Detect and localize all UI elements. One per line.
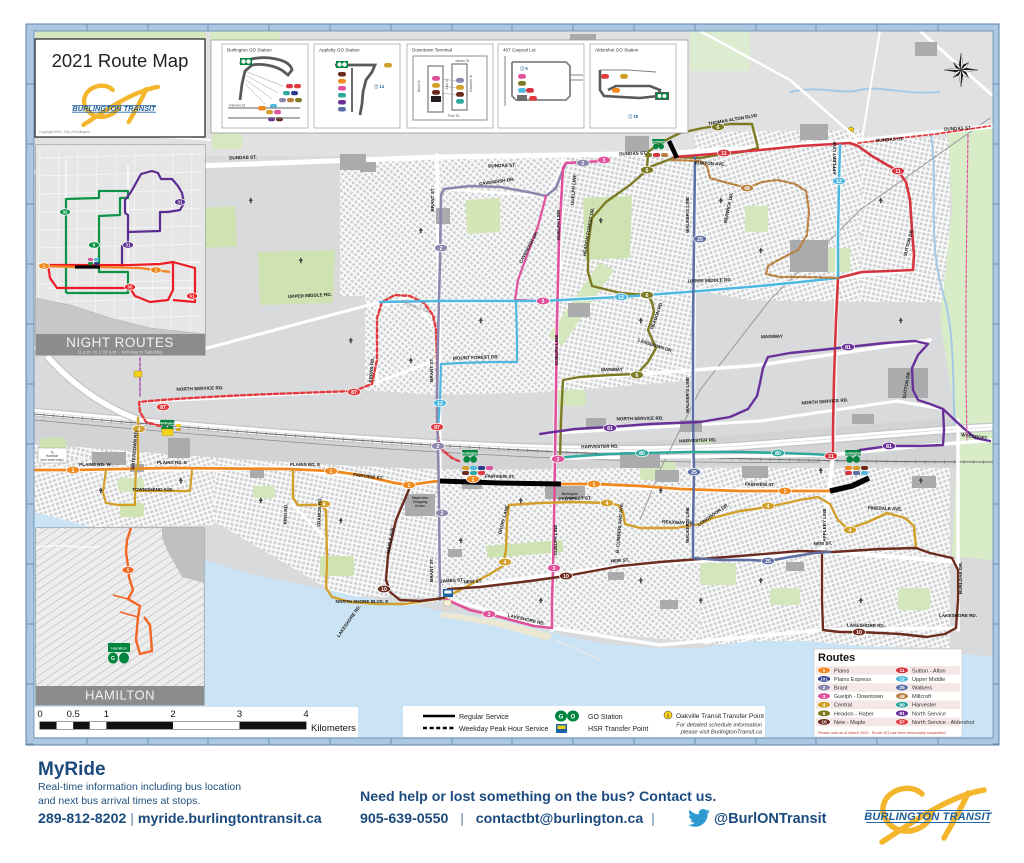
svg-text:Pine St.: Pine St. [448,114,460,118]
svg-text:3: 3 [237,709,242,720]
svg-text:Burlington: Burlington [844,451,861,455]
svg-text:Plains Express: Plains Express [834,677,871,683]
svg-text:James St.: James St. [455,59,470,63]
svg-text:GO Station: GO Station [588,714,623,721]
svg-text:DUNDAS ST.: DUNDAS ST. [488,163,516,169]
svg-text:Burlington: Burlington [461,451,478,455]
svg-text:11: 11 [895,169,901,175]
svg-text:Centre: Centre [565,496,575,500]
svg-text:1: 1 [472,477,475,483]
svg-text:please visit BurlingtonTransit: please visit BurlingtonTransit.ca [680,730,763,736]
svg-text:Millcroft: Millcroft [912,694,932,700]
svg-text:2: 2 [440,246,443,252]
svg-text:3: 3 [557,457,560,463]
svg-text:2: 2 [823,685,826,691]
svg-text:Burlington GO Station: Burlington GO Station [227,48,272,53]
svg-text:HAMILTON: HAMILTON [85,688,155,703]
svg-text:KING RD.: KING RD. [283,504,289,525]
svg-text:DUNDAS ST.: DUNDAS ST. [619,151,647,157]
svg-text:G: G [559,715,564,721]
svg-text:Upper Middle: Upper Middle [912,677,945,683]
svg-text:Routes: Routes [818,652,855,664]
svg-text:Sutton - Alton: Sutton - Alton [912,668,946,674]
svg-text:GUELPH LINE: GUELPH LINE [556,210,561,241]
svg-text:GUELPH LINE: GUELPH LINE [553,525,558,556]
svg-text:12: 12 [437,401,443,407]
svg-text:FAIRVIEW ST.: FAIRVIEW ST. [485,474,515,480]
svg-text:BRANT ST.: BRANT ST. [429,558,434,582]
svg-text:25: 25 [691,470,697,476]
svg-text:0.5: 0.5 [67,709,80,720]
svg-text:6: 6 [646,168,649,174]
svg-text:1: 1 [593,482,596,488]
svg-text:0: 0 [37,709,42,720]
svg-text:BRANT ST.: BRANT ST. [429,358,434,382]
svg-text:APPLEBY LINE: APPLEBY LINE [832,141,837,174]
svg-text:3: 3 [542,299,545,305]
svg-text:4: 4 [303,709,308,720]
svg-text:87: 87 [434,425,440,431]
svg-text:ⓘ 18: ⓘ 18 [628,113,639,120]
svg-text:HSR Transfer Point: HSR Transfer Point [588,726,648,733]
svg-text:32: 32 [62,210,68,215]
svg-text:81: 81 [899,711,905,717]
svg-text:G: G [111,656,115,662]
svg-text:6: 6 [646,293,649,299]
svg-text:50: 50 [127,285,133,290]
svg-text:NIGHT ROUTES: NIGHT ROUTES [66,335,174,350]
svg-text:6: 6 [717,125,720,131]
svg-text:GUELPH LINE: GUELPH LINE [554,335,559,366]
svg-text:Central: Central [834,703,852,709]
svg-text:31: 31 [125,243,131,248]
svg-text:31: 31 [177,200,183,205]
svg-text:Downtown Terminal: Downtown Terminal [412,48,452,53]
svg-text:80: 80 [639,451,645,457]
svg-text:12: 12 [618,295,624,301]
svg-text:DUNDAS ST.: DUNDAS ST. [229,155,257,161]
svg-text:2021 Route Map: 2021 Route Map [52,50,189,71]
svg-text:2: 2 [582,161,585,167]
svg-text:NORTH SHORE BLVD. E: NORTH SHORE BLVD. E [335,599,388,604]
svg-text:LAKESHORE RD.: LAKESHORE RD. [939,613,977,618]
svg-text:FRANCIS RD.: FRANCIS RD. [316,497,322,527]
svg-text:6: 6 [823,711,826,717]
svg-text:1: 1 [330,469,333,475]
svg-text:87: 87 [899,720,905,726]
svg-text:BRANT ST: BRANT ST [430,188,435,211]
svg-text:LAKESHORE RD.: LAKESHORE RD. [847,623,885,629]
svg-text:Brant St.: Brant St. [417,79,421,92]
svg-text:O: O [571,715,576,721]
svg-text:4: 4 [606,501,609,507]
svg-text:10: 10 [856,630,862,636]
svg-text:2: 2 [170,709,175,720]
svg-text:APPLEBY LINE: APPLEBY LINE [822,508,827,541]
svg-text:Guelph - Downtown: Guelph - Downtown [834,694,883,700]
svg-text:PLAINS RD. E: PLAINS RD. E [290,462,320,467]
svg-text:Kilometers: Kilometers [311,723,356,734]
svg-text:1: 1 [823,668,826,674]
svg-text:12: 12 [836,179,842,185]
svg-text:10: 10 [821,720,827,726]
svg-text:4: 4 [849,528,852,534]
svg-text:11 p.m. to 1:30 a.m. - Monday: 11 p.m. to 1:30 a.m. - Monday to Saturda… [77,350,163,355]
svg-text:TOWNSHEND AVE.: TOWNSHEND AVE. [132,487,174,492]
svg-text:1: 1 [72,468,75,474]
svg-text:81: 81 [845,345,851,351]
svg-text:87: 87 [351,390,357,396]
svg-text:80: 80 [899,702,905,708]
svg-text:Appleby GO Station: Appleby GO Station [319,48,360,53]
svg-text:10: 10 [563,574,569,580]
svg-text:3: 3 [603,158,606,164]
svg-text:3: 3 [823,694,826,700]
svg-text:Aldershot GO Station: Aldershot GO Station [595,48,639,53]
svg-text:North Service - Aldershot: North Service - Aldershot [912,720,975,726]
svg-text:Centre: Centre [415,504,425,508]
svg-text:80: 80 [775,451,781,457]
svg-text:WALKER’S LINE: WALKER’S LINE [685,377,690,413]
svg-text:1: 1 [408,483,411,489]
svg-text:81: 81 [886,444,892,450]
svg-text:Weekday Peak Hour Service: Weekday Peak Hour Service [459,726,548,733]
svg-text:1: 1 [784,489,787,495]
svg-text:HARVESTER RD.: HARVESTER RD. [581,444,619,450]
svg-text:Please note as of March 2020 -: Please note as of March 2020 - Route 101… [818,731,946,735]
svg-text:Copyright 2021, City of Burlin: Copyright 2021, City of Burlington [39,130,90,134]
svg-text:MAINWAY: MAINWAY [761,334,783,339]
svg-text:51: 51 [189,294,195,299]
svg-text:25: 25 [899,685,905,691]
svg-text:WALKER’S LINE: WALKER’S LINE [685,197,690,233]
svg-text:Brant: Brant [834,686,848,692]
svg-text:Elizabeth St.: Elizabeth St. [469,74,473,92]
svg-text:PLAINS RD. E: PLAINS RD. E [157,460,187,465]
svg-text:FAIRVIEW ST.: FAIRVIEW ST. [745,482,775,488]
svg-text:PLAINS RD. W: PLAINS RD. W [79,462,111,467]
svg-text:4: 4 [767,504,770,510]
svg-text:Oakville Transit Transfer Poin: Oakville Transit Transfer Point [676,713,764,720]
svg-text:407 Carpool Lot: 407 Carpool Lot [503,48,536,53]
svg-text:MAINWAY: MAINWAY [601,367,623,372]
svg-text:87: 87 [160,405,166,411]
svg-text:Hamilton: Hamilton [111,646,127,651]
svg-text:NORTH SERVICE RD.: NORTH SERVICE RD. [616,416,663,422]
svg-text:4: 4 [823,702,826,708]
svg-text:2: 2 [441,511,444,517]
svg-text:North Service: North Service [912,711,946,717]
svg-text:Plains: Plains [834,668,849,674]
svg-text:81: 81 [607,426,613,432]
svg-text:Fairview St.: Fairview St. [229,104,246,108]
svg-text:Headon - Haber: Headon - Haber [834,711,874,717]
svg-text:Walkers: Walkers [912,686,932,692]
svg-text:12: 12 [899,677,905,683]
svg-text:11: 11 [721,151,727,157]
svg-text:101: 101 [820,677,828,683]
svg-text:ⓘ 6: ⓘ 6 [520,65,528,72]
svg-text:2: 2 [437,444,440,450]
svg-text:48: 48 [744,186,750,192]
svg-text:BURLOAK DR.: BURLOAK DR. [958,562,963,594]
svg-text:6: 6 [636,373,639,379]
svg-text:48: 48 [899,694,905,700]
svg-text:3: 3 [553,566,556,572]
svg-text:1: 1 [104,709,109,720]
svg-text:5: 5 [127,568,130,574]
svg-text:3: 3 [488,612,491,618]
svg-text:Harvester: Harvester [912,703,936,709]
svg-text:25: 25 [697,237,703,243]
svg-text:4: 4 [504,560,507,566]
svg-text:(see insert map): (see insert map) [40,458,63,462]
svg-text:For detailed schedule informat: For detailed schedule information [676,723,762,729]
svg-text:11: 11 [899,668,904,674]
svg-text:Burlington: Burlington [651,140,665,144]
svg-text:10: 10 [381,587,387,593]
svg-text:BURLINGTON TRANSIT: BURLINGTON TRANSIT [864,811,993,823]
svg-text:New - Maple: New - Maple [834,720,865,726]
svg-text:Regular Service: Regular Service [459,714,509,721]
svg-text:ⓘ 14: ⓘ 14 [374,83,385,90]
svg-text:11: 11 [828,454,834,460]
svg-text:4: 4 [323,502,326,508]
svg-text:25: 25 [765,559,771,565]
svg-text:Burlington: Burlington [159,421,175,425]
